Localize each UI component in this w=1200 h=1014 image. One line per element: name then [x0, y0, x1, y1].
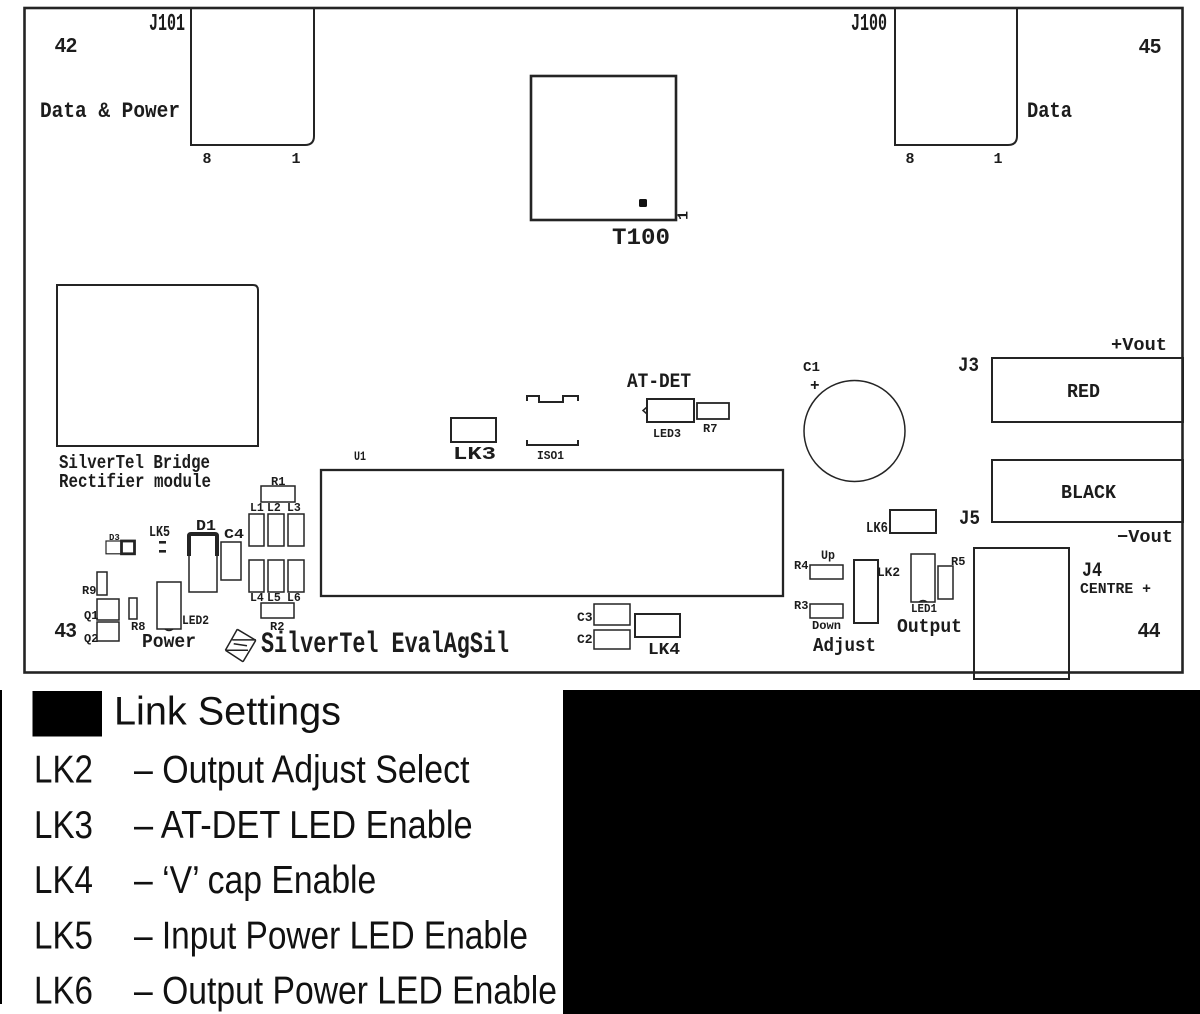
svg-text:Q2: Q2 — [84, 632, 98, 646]
svg-text:CENTRE +: CENTRE + — [1080, 582, 1151, 598]
svg-text:RED: RED — [1067, 381, 1100, 403]
svg-text:Q1: Q1 — [84, 609, 98, 623]
svg-text:+Vout: +Vout — [1111, 336, 1167, 356]
svg-text:1: 1 — [993, 151, 1002, 168]
svg-text:43: 43 — [55, 620, 77, 642]
svg-text:R4: R4 — [794, 559, 808, 573]
svg-text:8: 8 — [905, 151, 914, 168]
svg-text:Down: Down — [812, 619, 841, 633]
svg-text:8: 8 — [202, 151, 211, 168]
svg-text:LK5: LK5 — [34, 914, 93, 957]
svg-text:LED1: LED1 — [911, 603, 937, 616]
svg-text:C1: C1 — [803, 360, 820, 376]
svg-text:LK4: LK4 — [648, 641, 680, 660]
svg-text:LK3: LK3 — [453, 445, 496, 465]
svg-text:LK5: LK5 — [149, 525, 170, 541]
svg-text:Adjust: Adjust — [813, 635, 876, 657]
svg-text:C4: C4 — [224, 527, 244, 543]
svg-text:L1: L1 — [250, 502, 264, 515]
svg-text:Up: Up — [821, 548, 835, 563]
svg-text:−Vout: −Vout — [1117, 528, 1173, 548]
svg-text:R1: R1 — [271, 475, 285, 489]
svg-text:LED3: LED3 — [653, 427, 681, 441]
svg-text:R3: R3 — [794, 599, 808, 613]
svg-text:Data: Data — [1027, 99, 1072, 124]
svg-text:1: 1 — [676, 211, 693, 220]
svg-text:R9: R9 — [82, 584, 96, 598]
svg-text:Data & Power: Data & Power — [40, 99, 180, 124]
svg-text:J5: J5 — [959, 508, 980, 531]
svg-text:LK2: LK2 — [877, 565, 900, 580]
svg-text:J101: J101 — [149, 11, 185, 38]
svg-text:Rectifier module: Rectifier module — [59, 471, 211, 493]
svg-text:L3: L3 — [287, 502, 301, 515]
svg-text:ISO1: ISO1 — [537, 449, 564, 463]
svg-text:– AT-DET LED Enable: – AT-DET LED Enable — [134, 804, 473, 847]
svg-text:LK6: LK6 — [866, 521, 888, 537]
svg-text:BLACK: BLACK — [1061, 482, 1117, 504]
svg-text:Output: Output — [897, 616, 962, 638]
svg-text:42: 42 — [55, 35, 77, 57]
svg-text:LK2: LK2 — [34, 749, 93, 792]
svg-text:J3: J3 — [958, 355, 979, 378]
svg-text:Link Settings: Link Settings — [114, 690, 341, 734]
svg-text:– Output Adjust Select: – Output Adjust Select — [134, 749, 470, 792]
svg-text:U1: U1 — [354, 449, 366, 464]
svg-text:– Output Power LED Enable: – Output Power LED Enable — [134, 970, 557, 1013]
svg-text:– ‘V’ cap Enable: – ‘V’ cap Enable — [134, 859, 376, 902]
svg-text:SilverTel EvalAgSil: SilverTel EvalAgSil — [261, 628, 509, 662]
svg-text:LK3: LK3 — [34, 804, 93, 847]
svg-text:R5: R5 — [951, 555, 965, 569]
svg-text:LK4: LK4 — [34, 859, 93, 902]
svg-text:1: 1 — [291, 151, 300, 168]
svg-text:J100: J100 — [851, 11, 887, 38]
svg-text:J4: J4 — [1082, 560, 1102, 583]
svg-text:45: 45 — [1139, 36, 1161, 58]
svg-text:C3: C3 — [577, 610, 593, 625]
svg-text:AT-DET: AT-DET — [627, 371, 691, 394]
svg-text:C2: C2 — [577, 632, 593, 647]
svg-text:Power: Power — [142, 631, 196, 653]
svg-text:44: 44 — [1138, 620, 1161, 642]
svg-text:+: + — [810, 377, 820, 395]
svg-text:LED2: LED2 — [182, 614, 209, 628]
svg-text:– Input Power LED Enable: – Input Power LED Enable — [134, 914, 528, 957]
svg-text:R7: R7 — [703, 422, 717, 436]
svg-text:L2: L2 — [267, 502, 281, 515]
svg-text:T100: T100 — [612, 225, 670, 251]
svg-text:LK6: LK6 — [34, 970, 93, 1013]
